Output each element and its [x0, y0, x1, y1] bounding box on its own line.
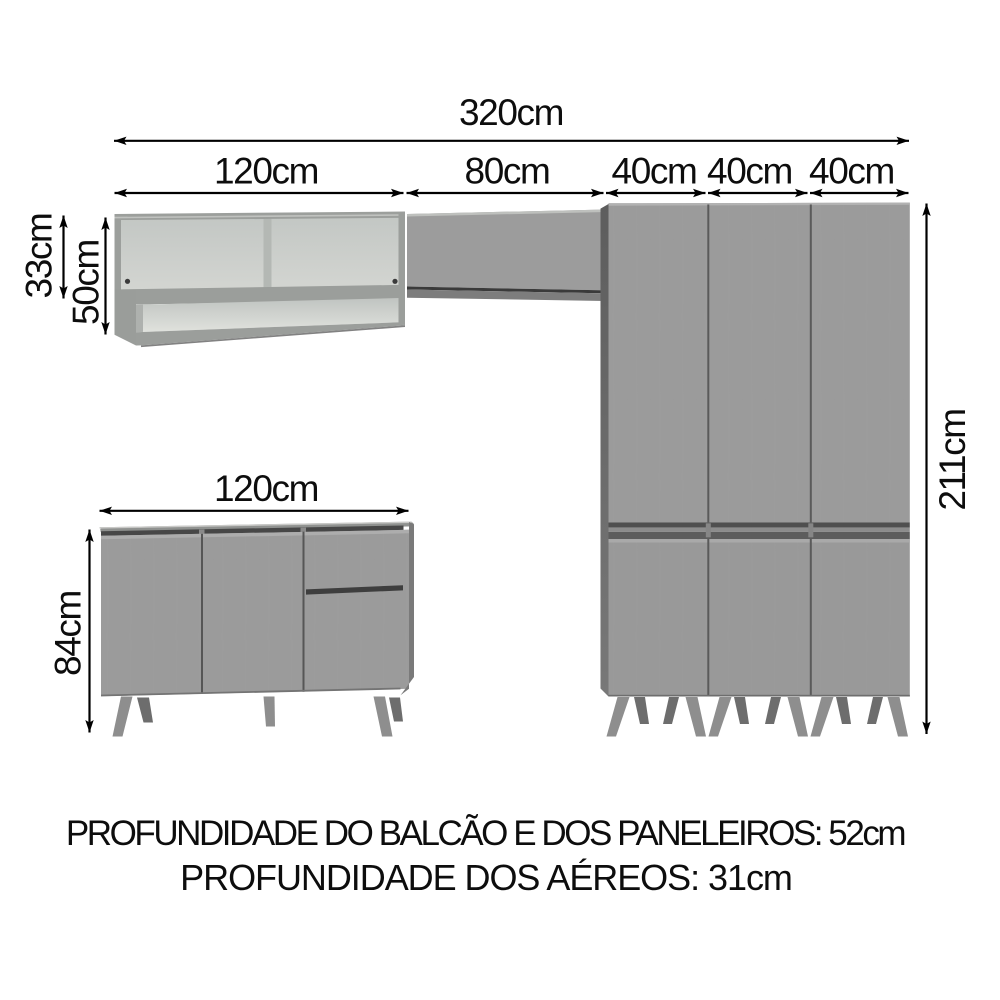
svg-text:40cm: 40cm — [707, 151, 792, 192]
svg-text:PROFUNDIDADE DOS AÉREOS: 31cm: PROFUNDIDADE DOS AÉREOS: 31cm — [180, 857, 792, 898]
svg-text:120cm: 120cm — [214, 468, 318, 509]
svg-text:80cm: 80cm — [465, 151, 550, 192]
svg-text:33cm: 33cm — [19, 214, 60, 299]
svg-text:120cm: 120cm — [214, 151, 318, 192]
svg-text:320cm: 320cm — [459, 92, 563, 133]
svg-text:40cm: 40cm — [612, 151, 697, 192]
svg-text:211cm: 211cm — [932, 409, 973, 510]
svg-text:40cm: 40cm — [809, 151, 894, 192]
svg-text:84cm: 84cm — [48, 591, 89, 676]
svg-text:50cm: 50cm — [66, 240, 107, 325]
svg-text:PROFUNDIDADE DO BALCÃO E DOS P: PROFUNDIDADE DO BALCÃO E DOS PANELEIROS:… — [66, 814, 904, 853]
